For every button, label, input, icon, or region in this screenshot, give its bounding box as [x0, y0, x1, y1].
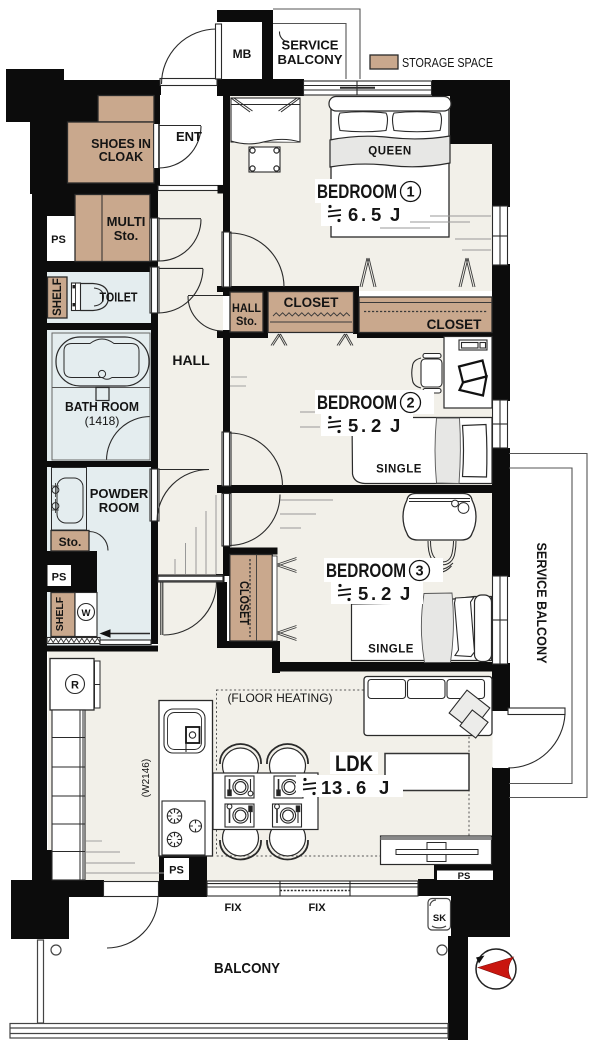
svg-text:SK: SK: [433, 913, 446, 924]
svg-text:ROOM: ROOM: [99, 500, 139, 515]
svg-text:FIX: FIX: [308, 902, 326, 914]
svg-text:5: 5: [371, 204, 381, 225]
svg-text:J: J: [390, 204, 400, 225]
svg-text:.: .: [346, 777, 351, 798]
svg-text:SHELF: SHELF: [52, 278, 64, 316]
svg-text:STORAGE SPACE: STORAGE SPACE: [402, 56, 493, 70]
svg-text:MB: MB: [233, 47, 252, 61]
svg-text:6: 6: [356, 777, 366, 798]
svg-text:1: 1: [406, 185, 414, 201]
svg-text:CLOAK: CLOAK: [99, 150, 143, 164]
svg-text:3: 3: [415, 564, 423, 580]
svg-text:BEDROOM: BEDROOM: [326, 560, 406, 582]
svg-text:BEDROOM: BEDROOM: [317, 181, 397, 203]
svg-text:J: J: [379, 777, 389, 798]
svg-text:5: 5: [348, 415, 358, 436]
svg-text:QUEEN: QUEEN: [368, 146, 411, 158]
svg-text:SHOES IN: SHOES IN: [91, 137, 151, 151]
svg-text:HALL: HALL: [172, 352, 210, 368]
svg-text:(W2146): (W2146): [141, 759, 152, 797]
svg-text:2: 2: [381, 583, 391, 604]
svg-text:6: 6: [348, 204, 358, 225]
svg-text:PS: PS: [458, 871, 471, 882]
svg-text:SINGLE: SINGLE: [368, 644, 414, 656]
svg-text:HALL: HALL: [232, 301, 261, 315]
svg-text:W: W: [82, 608, 91, 619]
svg-text:.: .: [371, 583, 376, 604]
svg-text:SHELF: SHELF: [54, 596, 66, 631]
svg-text:5: 5: [358, 583, 368, 604]
svg-text:.: .: [361, 415, 366, 436]
svg-text:MULTI: MULTI: [107, 214, 146, 229]
svg-text:BEDROOM: BEDROOM: [317, 392, 397, 414]
svg-text:J: J: [390, 415, 400, 436]
svg-text:PS: PS: [51, 234, 66, 246]
svg-text:1: 1: [321, 777, 331, 798]
svg-text:SINGLE: SINGLE: [376, 464, 422, 476]
svg-text:2: 2: [406, 396, 414, 412]
svg-text:CLOSET: CLOSET: [284, 295, 340, 310]
svg-text:BALCONY: BALCONY: [278, 52, 343, 67]
svg-text:PS: PS: [169, 865, 184, 877]
svg-text:Sto.: Sto.: [114, 228, 139, 243]
svg-text:PS: PS: [52, 572, 67, 584]
svg-text:SERVICE BALCONY: SERVICE BALCONY: [534, 543, 549, 664]
svg-text:(FLOOR HEATING): (FLOOR HEATING): [227, 691, 332, 705]
svg-text:Sto.: Sto.: [59, 535, 82, 549]
svg-text:LDK: LDK: [335, 751, 373, 776]
svg-text:.: .: [361, 204, 366, 225]
svg-text:SERVICE: SERVICE: [282, 38, 339, 53]
svg-text:J: J: [400, 583, 410, 604]
svg-text:3: 3: [332, 777, 342, 798]
svg-text:BALCONY: BALCONY: [214, 960, 280, 977]
svg-text:R: R: [71, 680, 79, 692]
svg-text:Sto.: Sto.: [236, 314, 257, 328]
svg-text:2: 2: [371, 415, 381, 436]
svg-text:CLOSET: CLOSET: [427, 317, 483, 332]
svg-text:TOILET: TOILET: [100, 290, 138, 305]
svg-text:BATH ROOM: BATH ROOM: [65, 399, 139, 414]
svg-text:POWDER: POWDER: [90, 486, 149, 501]
svg-text:FIX: FIX: [224, 902, 242, 914]
svg-text:(1418): (1418): [85, 414, 120, 428]
svg-text:ENT: ENT: [176, 129, 202, 144]
svg-text:CLOSET: CLOSET: [237, 581, 251, 625]
